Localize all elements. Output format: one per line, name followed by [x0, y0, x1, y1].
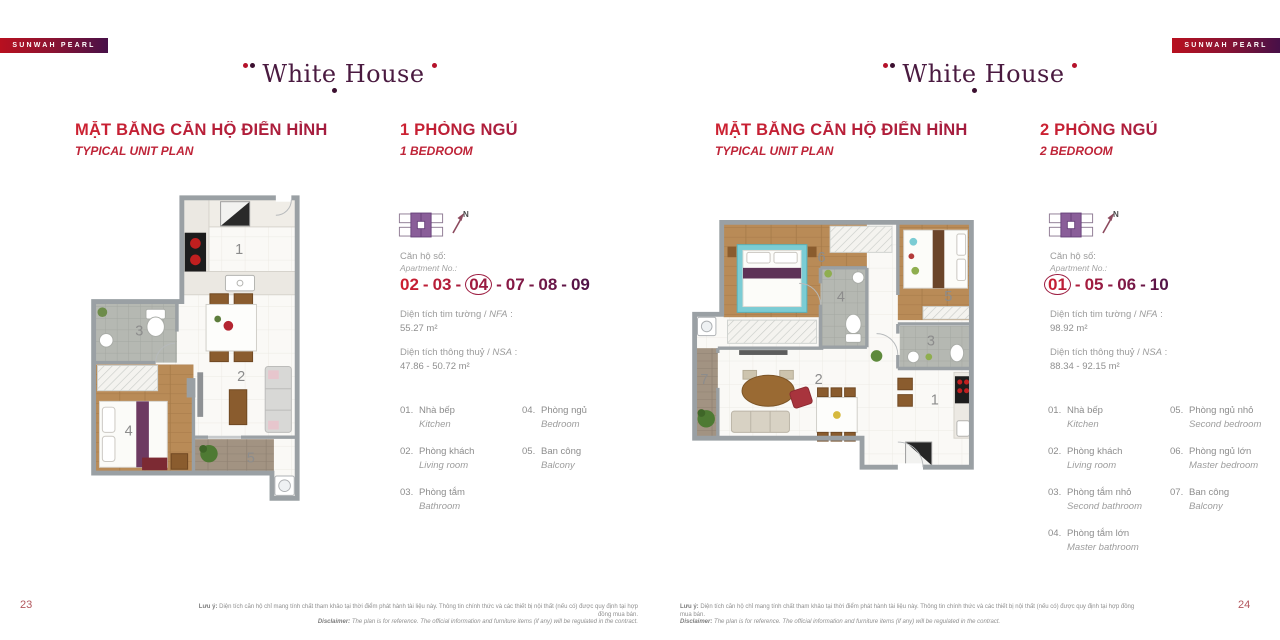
logo-dot-icon — [243, 63, 248, 68]
legend-item-name-en: Second bathroom — [1067, 501, 1170, 512]
legend-item: 07.Ban côngBalcony — [1170, 487, 1280, 512]
legend-item-number: 03. — [1048, 487, 1067, 498]
room-number-label: 7 — [700, 372, 708, 388]
disclaimer-label-vi: Lưu ý: — [680, 604, 699, 610]
legend-item: 06.Phòng ngủ lớnMaster bedroom — [1170, 446, 1280, 471]
room-legend: 01.Nhà bếpKitchen02.Phòng kháchLiving ro… — [1048, 405, 1280, 569]
nfa-abbr: NFA — [489, 309, 507, 320]
apartment-numbers: 02-03-04-07-08-09 — [398, 275, 592, 295]
page-title: MẶT BẰNG CĂN HỘ ĐIỂN HÌNH TYPICAL UNIT P… — [715, 121, 968, 158]
logo-dot-icon — [432, 63, 437, 68]
apartment-number: 09 — [571, 275, 590, 294]
apartment-number-circled: 04 — [465, 274, 492, 295]
legend-item-number: 02. — [1048, 446, 1067, 457]
room-number-label: 2 — [237, 369, 245, 385]
logo-text: White House — [262, 60, 424, 88]
apartment-number: 03 — [433, 275, 452, 294]
disclaimer-text-vi: Diện tích căn hộ chỉ mang tính chất tham… — [219, 604, 638, 618]
unit-type-en: 2 BEDROOM — [1040, 144, 1158, 158]
floor-plan-1br: 1 2 3 4 5 — [82, 190, 334, 510]
page-number: 23 — [20, 599, 32, 611]
legend-item-number: 05. — [522, 446, 541, 457]
disclaimer-text-en: The plan is for reference. The official … — [352, 619, 638, 625]
apartment-number: 06 — [1117, 275, 1136, 294]
legend-item-name-en: Balcony — [1189, 501, 1280, 512]
apartment-no-label-en: Apartment No.: — [400, 263, 457, 273]
dash-separator: - — [529, 275, 535, 294]
legend-item-number: 05. — [1170, 405, 1189, 416]
legend-item-number: 04. — [1048, 528, 1067, 539]
legend-item-name-vi: Phòng khách — [1067, 446, 1122, 457]
legend-item-name-en: Bedroom — [541, 419, 644, 430]
apartment-number: 02 — [400, 275, 419, 294]
north-label: N — [463, 210, 469, 219]
disclaimer-note: Lưu ý: Diện tích căn hộ chỉ mang tính ch… — [680, 604, 1140, 627]
unit-type-vi: 2 PHÒNG NGỦ — [1040, 121, 1158, 140]
nfa-label-vi: Diện tích tim tường / — [1050, 309, 1139, 320]
nfa-value: 55.27 m² — [400, 323, 438, 334]
page-title-en: TYPICAL UNIT PLAN — [715, 144, 968, 158]
room-number-label: 3 — [135, 323, 143, 339]
legend-item-name-en: Living room — [1067, 460, 1170, 471]
unit-type-title: 2 PHÒNG NGỦ 2 BEDROOM — [1040, 121, 1158, 158]
apartment-no-label-vi: Căn hộ số: — [400, 251, 446, 262]
legend-item-name-vi: Phòng khách — [419, 446, 474, 457]
apartment-number: 08 — [538, 275, 557, 294]
dash-separator: - — [561, 275, 567, 294]
room-number-label: 3 — [927, 333, 935, 349]
brand-ribbon: SUNWAH PEARL — [0, 38, 108, 53]
room-number-label: 5 — [944, 289, 952, 305]
white-house-logo: White House — [872, 60, 1082, 112]
nfa-abbr: NFA — [1139, 309, 1157, 320]
brand-ribbon-label: SUNWAH PEARL — [12, 42, 95, 49]
room-number-label: 1 — [931, 392, 939, 408]
disclaimer-line-en: Disclaimer: The plan is for reference. T… — [680, 619, 1140, 627]
logo-dot-icon — [332, 88, 337, 93]
legend-item: 01.Nhà bếpKitchen — [400, 405, 522, 430]
legend-item-name-vi: Nhà bếp — [1067, 405, 1103, 416]
legend-item-name-en: Master bathroom — [1067, 542, 1170, 553]
apartment-numbers: 01-05-06-10 — [1042, 275, 1171, 295]
page-number: 24 — [1238, 599, 1250, 611]
legend-item-name-en: Balcony — [541, 460, 644, 471]
nfa-label: Diện tích tim tường / NFA : — [1050, 309, 1163, 320]
disclaimer-label-en: Disclaimer: — [318, 619, 350, 625]
legend-column: 04.Phòng ngủBedroom05.Ban côngBalcony — [522, 405, 644, 528]
legend-item-name-vi: Ban công — [541, 446, 581, 457]
legend-item-number: 01. — [400, 405, 419, 416]
nsa-value: 47.86 - 50.72 m² — [400, 361, 470, 372]
room-number-label: 1 — [235, 242, 243, 258]
legend-item-name-vi: Phòng tắm nhỏ — [1067, 487, 1131, 498]
legend-item-number: 03. — [400, 487, 419, 498]
nsa-label-vi: Diện tích thông thuỷ / — [400, 347, 492, 358]
legend-item-number: 06. — [1170, 446, 1189, 457]
legend-item: 05.Phòng ngủ nhỏSecond bedroom — [1170, 405, 1280, 430]
legend-item: 03.Phòng tắm nhỏSecond bathroom — [1048, 487, 1170, 512]
room-number-label: 4 — [837, 290, 845, 306]
dash-separator: - — [423, 275, 429, 294]
disclaimer-text-vi: Diện tích căn hộ chỉ mang tính chất tham… — [680, 604, 1134, 618]
nsa-value: 88.34 - 92.15 m² — [1050, 361, 1120, 372]
legend-column: 05.Phòng ngủ nhỏSecond bedroom06.Phòng n… — [1170, 405, 1280, 569]
legend-item: 04.Phòng ngủBedroom — [522, 405, 644, 430]
legend-column: 01.Nhà bếpKitchen02.Phòng kháchLiving ro… — [400, 405, 522, 528]
unit-type-en: 1 BEDROOM — [400, 144, 518, 158]
room-number-label: 2 — [815, 372, 823, 388]
floor-plan-2br: 1 2 3 4 5 6 7 — [683, 198, 983, 479]
legend-item-name-en: Master bedroom — [1189, 460, 1280, 471]
legend-item: 02.Phòng kháchLiving room — [1048, 446, 1170, 471]
key-plan-icon — [1048, 211, 1094, 239]
disclaimer-note: Lưu ý: Diện tích căn hộ chỉ mang tính ch… — [185, 604, 638, 627]
disclaimer-line-en: Disclaimer: The plan is for reference. T… — [185, 619, 638, 627]
apartment-number: 07 — [506, 275, 525, 294]
brand-ribbon: SUNWAH PEARL — [1172, 38, 1280, 53]
page-title-vi: MẶT BẰNG CĂN HỘ ĐIỂN HÌNH — [715, 121, 968, 140]
apartment-no-label-vi: Căn hộ số: — [1050, 251, 1096, 262]
logo-text: White House — [902, 60, 1064, 88]
legend-item-name-vi: Phòng ngủ nhỏ — [1189, 405, 1253, 416]
legend-item: 04.Phòng tắm lớnMaster bathroom — [1048, 528, 1170, 553]
legend-item: 05.Ban côngBalcony — [522, 446, 644, 471]
key-plan-icon — [398, 211, 444, 239]
white-house-logo: White House — [232, 60, 442, 112]
legend-item-name-vi: Phòng tắm — [419, 487, 465, 498]
nsa-label-vi: Diện tích thông thuỷ / — [1050, 347, 1142, 358]
legend-item: 01.Nhà bếpKitchen — [1048, 405, 1170, 430]
page-title-en: TYPICAL UNIT PLAN — [75, 144, 328, 158]
apartment-number: 10 — [1150, 275, 1169, 294]
nfa-value: 98.92 m² — [1050, 323, 1088, 334]
room-number-label: 4 — [125, 423, 133, 439]
nsa-colon: : — [1162, 347, 1167, 358]
page-title-vi: MẶT BẰNG CĂN HỘ ĐIỂN HÌNH — [75, 121, 328, 140]
nfa-colon: : — [507, 309, 512, 320]
nfa-colon: : — [1157, 309, 1162, 320]
legend-item-name-vi: Ban công — [1189, 487, 1229, 498]
disclaimer-line-vi: Lưu ý: Diện tích căn hộ chỉ mang tính ch… — [680, 604, 1140, 619]
logo-dots-icon — [242, 69, 256, 86]
logo-dot-icon — [1072, 63, 1077, 68]
legend-item: 02.Phòng kháchLiving room — [400, 446, 522, 471]
unit-type-title: 1 PHÒNG NGỦ 1 BEDROOM — [400, 121, 518, 158]
disclaimer-text-en: The plan is for reference. The official … — [714, 619, 1000, 625]
legend-item-number: 01. — [1048, 405, 1067, 416]
nsa-label: Diện tích thông thuỷ / NSA : — [1050, 347, 1167, 358]
disclaimer-label-en: Disclaimer: — [680, 619, 712, 625]
legend-item-name-en: Bathroom — [419, 501, 522, 512]
nfa-label-vi: Diện tích tim tường / — [400, 309, 489, 320]
disclaimer-label-vi: Lưu ý: — [199, 604, 218, 610]
logo-dot-icon — [890, 63, 895, 68]
dash-separator: - — [496, 275, 502, 294]
nsa-abbr: NSA — [492, 347, 512, 358]
legend-item-name-en: Kitchen — [1067, 419, 1170, 430]
apartment-no-label-en: Apartment No.: — [1050, 263, 1107, 273]
apartment-number: 05 — [1085, 275, 1104, 294]
logo-dot-icon — [250, 63, 255, 68]
legend-item-name-vi: Nhà bếp — [419, 405, 455, 416]
room-number-label: 6 — [818, 250, 826, 266]
legend-item-name-en: Living room — [419, 460, 522, 471]
nfa-label: Diện tích tim tường / NFA : — [400, 309, 513, 320]
brochure-spread: SUNWAH PEARL White House MẶT BẰNG CĂN HỘ… — [0, 0, 1280, 640]
room-number-label: 5 — [247, 450, 255, 466]
legend-item-name-vi: Phòng ngủ — [541, 405, 587, 416]
legend-item: 03.Phòng tắmBathroom — [400, 487, 522, 512]
legend-column: 01.Nhà bếpKitchen02.Phòng kháchLiving ro… — [1048, 405, 1170, 569]
brand-ribbon-label: SUNWAH PEARL — [1184, 42, 1267, 49]
logo-dots-icon — [882, 69, 896, 86]
dash-separator: - — [1108, 275, 1114, 294]
page-title: MẶT BẰNG CĂN HỘ ĐIỂN HÌNH TYPICAL UNIT P… — [75, 121, 328, 158]
dash-separator: - — [456, 275, 462, 294]
legend-item-number: 07. — [1170, 487, 1189, 498]
north-arrow-icon: N — [1098, 209, 1122, 237]
legend-item-number: 04. — [522, 405, 541, 416]
legend-item-name-vi: Phòng ngủ lớn — [1189, 446, 1251, 457]
apartment-number-circled: 01 — [1044, 274, 1071, 295]
legend-item-name-en: Second bedroom — [1189, 419, 1280, 430]
legend-item-name-en: Kitchen — [419, 419, 522, 430]
north-arrow-icon: N — [448, 209, 472, 237]
unit-type-vi: 1 PHÒNG NGỦ — [400, 121, 518, 140]
north-label: N — [1113, 210, 1119, 219]
legend-item-number: 02. — [400, 446, 419, 457]
dash-separator: - — [1075, 275, 1081, 294]
legend-item-name-vi: Phòng tắm lớn — [1067, 528, 1129, 539]
dash-separator: - — [1140, 275, 1146, 294]
nsa-colon: : — [512, 347, 517, 358]
logo-dot-icon — [972, 88, 977, 93]
room-legend: 01.Nhà bếpKitchen02.Phòng kháchLiving ro… — [400, 405, 644, 528]
logo-dot-icon — [883, 63, 888, 68]
disclaimer-line-vi: Lưu ý: Diện tích căn hộ chỉ mang tính ch… — [185, 604, 638, 619]
nsa-label: Diện tích thông thuỷ / NSA : — [400, 347, 517, 358]
nsa-abbr: NSA — [1142, 347, 1162, 358]
